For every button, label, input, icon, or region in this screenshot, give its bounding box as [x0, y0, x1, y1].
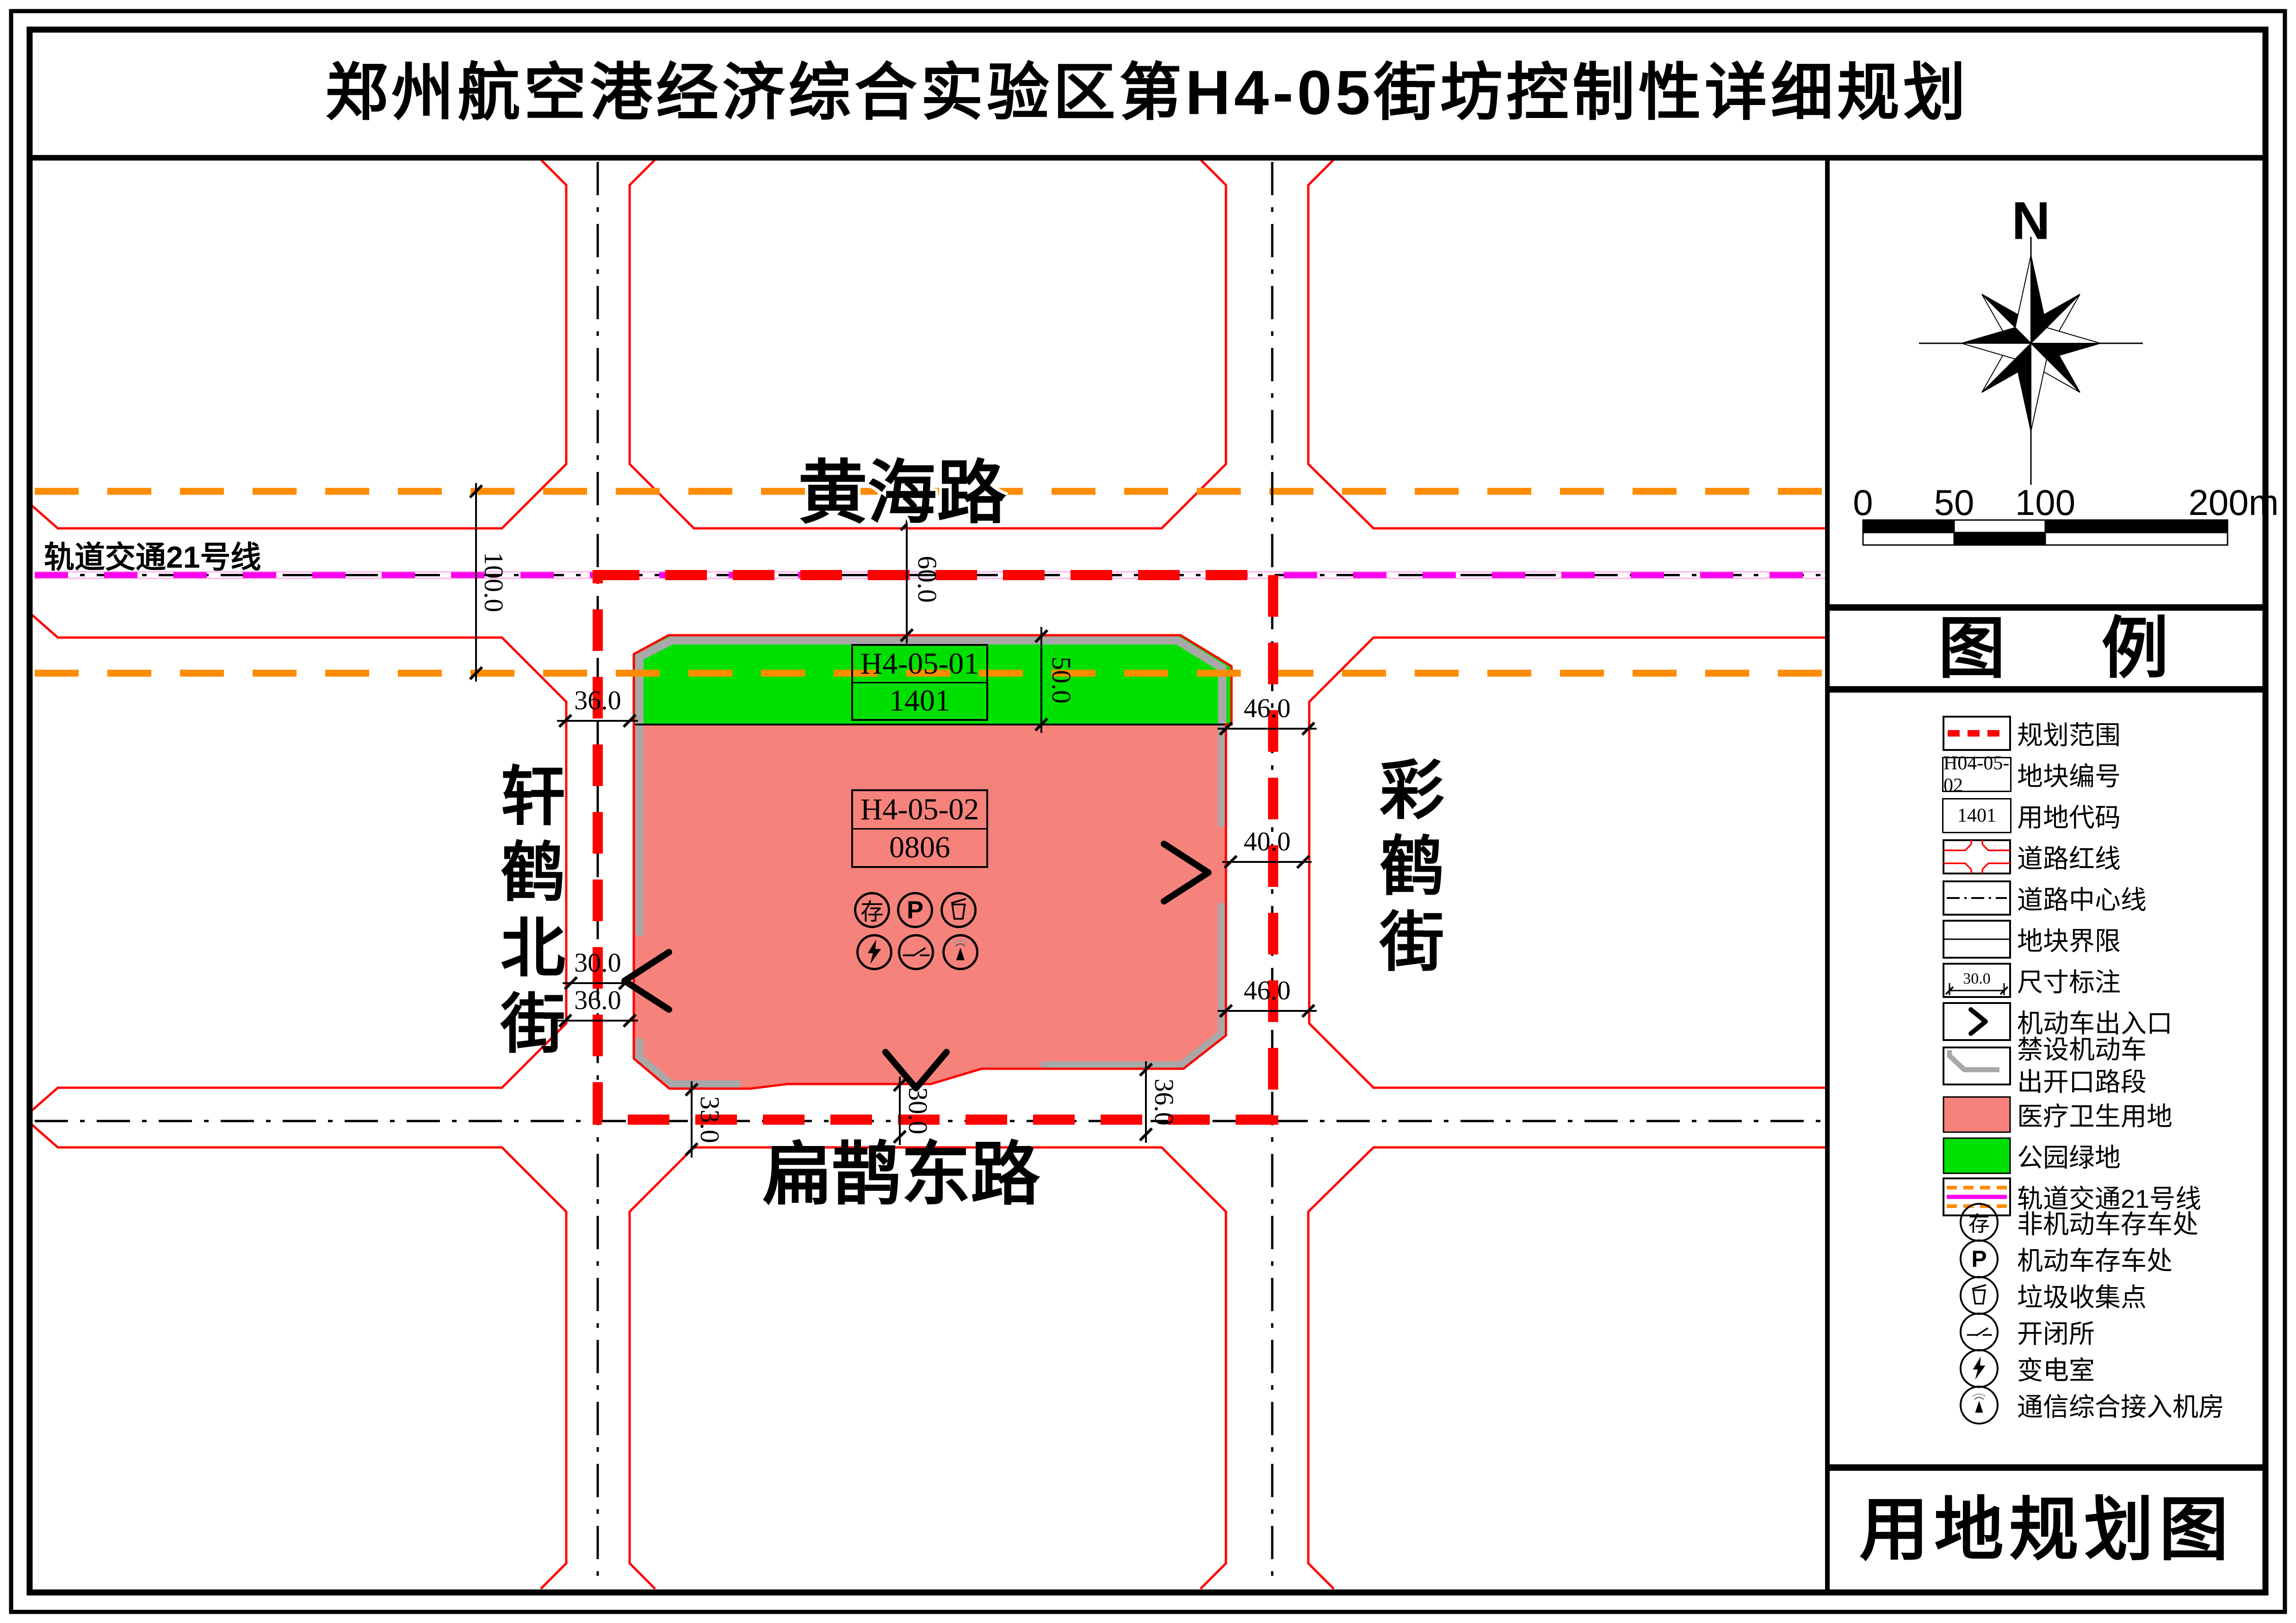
park-green-swatch — [1942, 1134, 2011, 1178]
road-name-east: 彩鹤街 — [1374, 756, 1439, 984]
use-code-swatch: 1401 — [1942, 793, 2011, 838]
scale-tick-100: 100 — [2015, 484, 2075, 520]
dim-east-mid: 40.0 — [1244, 828, 1291, 855]
road-name-north: 黄海路 — [798, 458, 1006, 527]
legend-no-opening: 禁设机动车 出开口路段 — [1942, 1044, 2266, 1088]
dim-east-top: 46.0 — [1244, 695, 1291, 722]
dim-huanghai-width: 60.0 — [914, 556, 941, 603]
dim-west-top: 36.0 — [574, 687, 621, 714]
legend-road-redline: 道路红线 — [1942, 835, 2266, 879]
telecom-room-icon — [1960, 1386, 1999, 1425]
legend-parcel-number: H04-05-02 地块编号 — [1942, 752, 2266, 797]
legend-parcel-boundary: 地块界限 — [1942, 917, 2266, 961]
bicycle-parking-icon: 存 — [854, 892, 890, 928]
dim-west-bottom: 36.0 — [574, 987, 621, 1014]
compass-rose — [1919, 237, 2143, 485]
parcel-box-green: H4-05-01 1401 — [851, 644, 988, 721]
legend-use-code: 1401 用地代码 — [1942, 793, 2266, 838]
legend-title-left: 图 — [1938, 615, 2005, 682]
switch-station-icon — [898, 934, 934, 970]
footer-title: 用地规划图 — [1859, 1495, 2234, 1564]
rail-line-label: 轨道交通21号线 — [44, 542, 261, 572]
dim-green-depth: 50.0 — [1048, 657, 1075, 704]
legend-road-centerline: 道路中心线 — [1942, 876, 2266, 920]
use-code: 1401 — [853, 682, 986, 719]
road-redline-swatch — [1942, 835, 2011, 879]
scale-tick-50: 50 — [1934, 484, 1974, 520]
parcel-code: H4-05-01 — [853, 646, 986, 682]
legend-park-green: 公园绿地 — [1942, 1134, 2266, 1178]
dim-west-mid: 30.0 — [574, 949, 621, 976]
legend-telecom-room: 通信综合接入机房 — [1942, 1383, 2266, 1427]
road-centerline-swatch — [1942, 876, 2011, 920]
legend-planning-boundary: 规划范围 — [1942, 711, 2266, 756]
road-name-south: 扁鹊东路 — [762, 1140, 1040, 1209]
scale-tick-200: 200m — [2188, 484, 2278, 520]
substation-icon — [856, 934, 892, 970]
legend-medical-land: 医疗卫生用地 — [1942, 1092, 2266, 1137]
road-name-west: 轩鹤北街 — [495, 762, 560, 1065]
legend-dimension: 30.0 尺寸标注 — [1942, 958, 2266, 1003]
scale-bar — [1863, 520, 2228, 545]
switch-station-icon — [1960, 1313, 1999, 1351]
parcel-boundary-swatch — [1942, 917, 2011, 961]
trash-collection-icon — [941, 892, 977, 928]
trash-collection-icon — [1960, 1276, 1999, 1315]
dimension-swatch: 30.0 — [1942, 958, 2011, 1003]
bicycle-parking-icon: 存 — [1960, 1203, 1999, 1242]
dim-east-bottom: 46.0 — [1244, 977, 1291, 1004]
dim-rail-corridor: 100.0 — [480, 552, 507, 613]
dim-south-left: 33.0 — [696, 1096, 723, 1143]
sheet-title: 郑州航空港经济综合实验区第H4-05街坊控制性详细规划 — [325, 62, 1969, 124]
parcel-code: H4-05-02 — [853, 791, 986, 828]
dim-south-mid: 30.0 — [904, 1087, 931, 1134]
scale-tick-0: 0 — [1853, 484, 1873, 520]
car-parking-icon: P — [897, 892, 933, 928]
no-opening-swatch — [1942, 1044, 2011, 1088]
use-code: 0806 — [853, 828, 986, 867]
telecom-room-icon — [942, 934, 978, 970]
planning-boundary-swatch — [1942, 711, 2011, 756]
planning-map-sheet: 郑州航空港经济综合实验区第H4-05街坊控制性详细规划 黄海路 扁鹊东路 轩鹤北… — [0, 0, 2296, 1623]
parcel-box-pink: H4-05-02 0806 — [851, 789, 988, 868]
car-parking-icon: P — [1960, 1239, 1999, 1278]
parcel-number-swatch: H04-05-02 — [1942, 752, 2011, 797]
vehicle-entrance-swatch — [1942, 999, 2011, 1044]
dim-south-right: 36.0 — [1151, 1078, 1177, 1126]
legend-title-right: 例 — [2102, 615, 2169, 682]
medical-land-swatch — [1942, 1092, 2011, 1137]
substation-icon — [1960, 1349, 1999, 1388]
compass-n-label: N — [2011, 195, 2050, 248]
